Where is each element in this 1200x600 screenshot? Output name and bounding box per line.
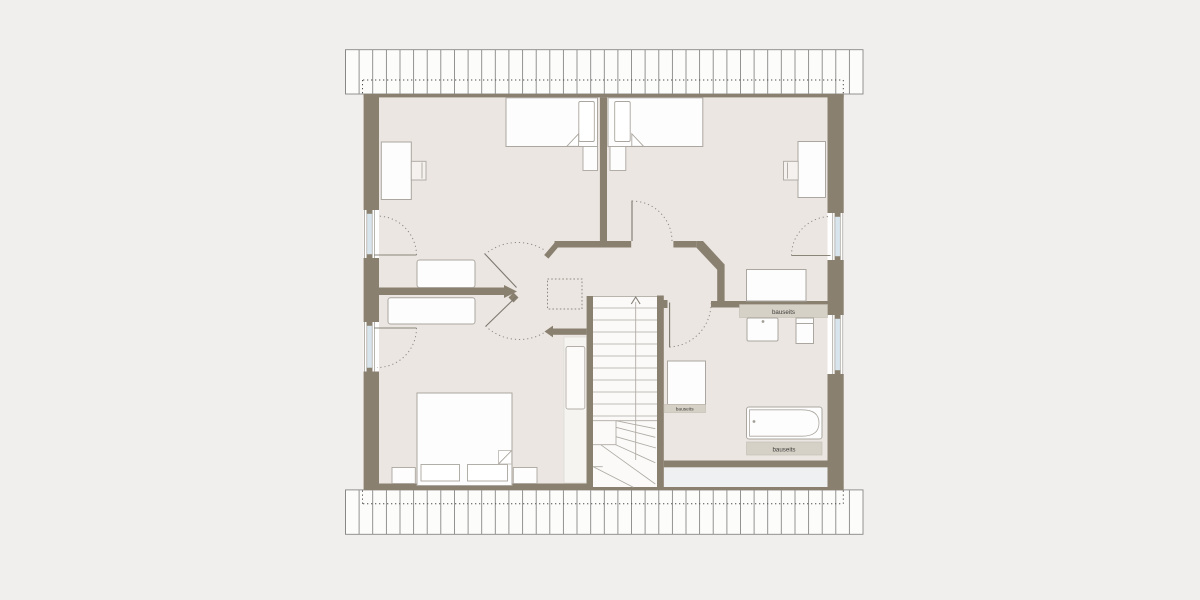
svg-text:bauseits: bauseits <box>772 309 795 316</box>
svg-text:bauseits: bauseits <box>676 407 694 413</box>
svg-text:bauseits: bauseits <box>772 446 795 453</box>
